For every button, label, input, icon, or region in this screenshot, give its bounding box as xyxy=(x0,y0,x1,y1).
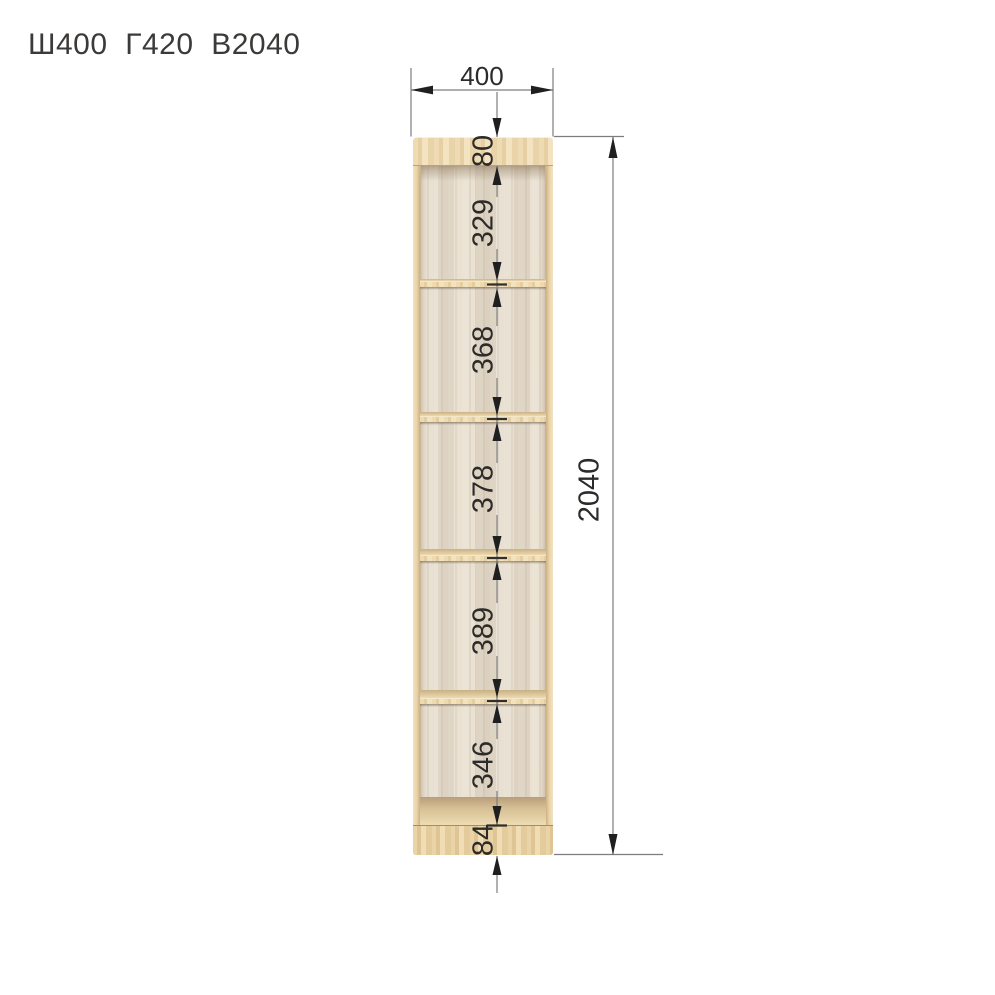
chain-dim-label-7: 84 xyxy=(470,824,499,856)
height-dim-label: 2040 xyxy=(576,458,605,523)
chain-dim-label-4: 378 xyxy=(470,465,499,513)
chain-dim-label-5: 389 xyxy=(470,607,499,655)
height-dimension xyxy=(554,137,663,856)
width-dim-label: 400 xyxy=(460,63,503,89)
chain-dim-label-2: 329 xyxy=(470,199,499,247)
chain-dim-label-3: 368 xyxy=(470,326,499,374)
chain-dim-label-6: 346 xyxy=(470,741,499,789)
chain-dim-label-1: 80 xyxy=(470,135,499,167)
